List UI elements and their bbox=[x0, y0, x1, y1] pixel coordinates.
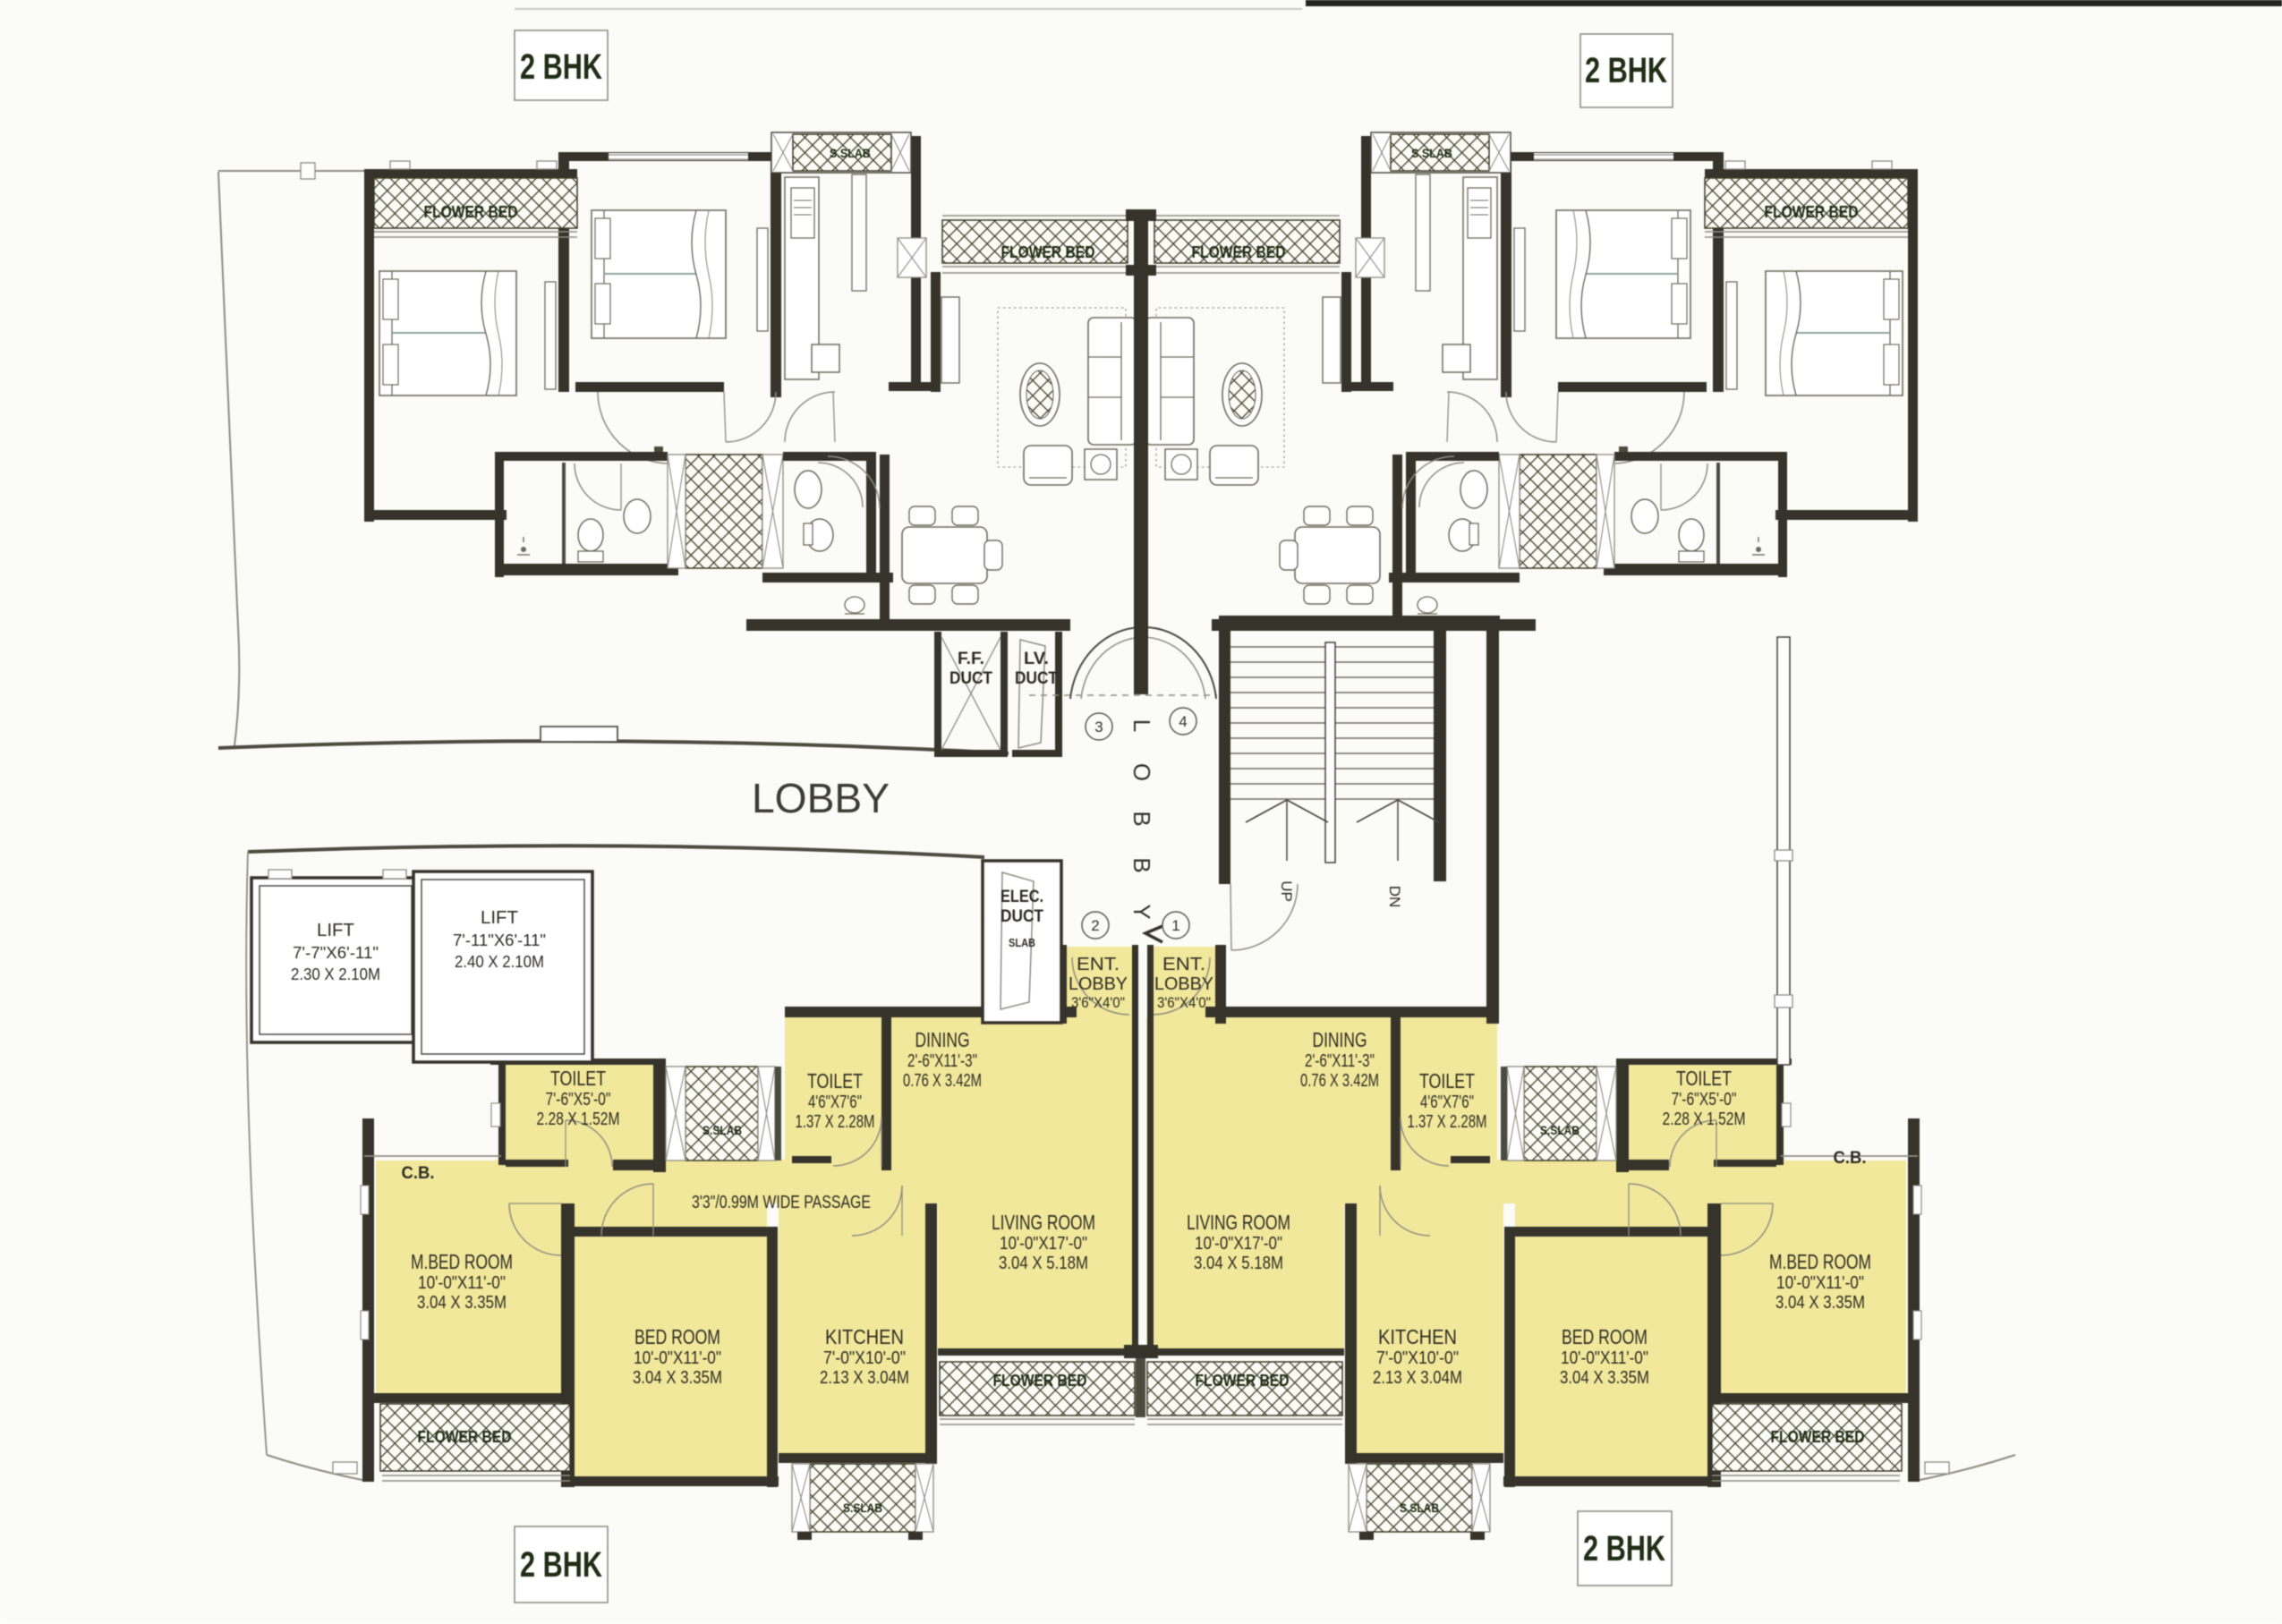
svg-text:3.04 X 3.35M: 3.04 X 3.35M bbox=[1560, 1368, 1649, 1388]
svg-text:S.SLAB: S.SLAB bbox=[1411, 146, 1452, 160]
svg-text:2 BHK: 2 BHK bbox=[520, 47, 602, 87]
svg-text:0.76 X 3.42M: 0.76 X 3.42M bbox=[1300, 1071, 1379, 1091]
svg-text:LOBBY: LOBBY bbox=[752, 775, 890, 821]
svg-text:LIVING ROOM: LIVING ROOM bbox=[1187, 1211, 1290, 1234]
svg-text:DINING: DINING bbox=[1313, 1028, 1367, 1051]
svg-text:TOILET: TOILET bbox=[807, 1069, 863, 1093]
svg-text:2: 2 bbox=[1091, 917, 1099, 934]
svg-text:2.13 X 3.04M: 2.13 X 3.04M bbox=[1373, 1368, 1462, 1388]
svg-text:S.SLAB: S.SLAB bbox=[1540, 1123, 1580, 1137]
svg-text:3: 3 bbox=[1094, 718, 1103, 735]
svg-text:FLOWER BED: FLOWER BED bbox=[1771, 1428, 1865, 1446]
svg-text:3'6"X4'0": 3'6"X4'0" bbox=[1157, 994, 1211, 1011]
svg-text:KITCHEN: KITCHEN bbox=[1378, 1325, 1457, 1348]
svg-text:DINING: DINING bbox=[915, 1028, 970, 1051]
svg-text:TOILET: TOILET bbox=[1419, 1069, 1475, 1093]
svg-text:4'6"X7'6": 4'6"X7'6" bbox=[808, 1093, 862, 1112]
svg-text:ELEC.: ELEC. bbox=[1001, 888, 1043, 906]
svg-text:M.BED ROOM: M.BED ROOM bbox=[1769, 1250, 1871, 1273]
svg-text:10'-0"X11'-0": 10'-0"X11'-0" bbox=[1776, 1273, 1864, 1293]
svg-text:C.B.: C.B. bbox=[402, 1164, 435, 1183]
svg-text:0.76 X 3.42M: 0.76 X 3.42M bbox=[903, 1071, 982, 1091]
svg-text:TOILET: TOILET bbox=[550, 1067, 606, 1090]
svg-text:7'-0"X10'-0": 7'-0"X10'-0" bbox=[1376, 1348, 1459, 1368]
svg-text:2'-6"X11'-3": 2'-6"X11'-3" bbox=[1305, 1051, 1375, 1071]
svg-text:LOBBY: LOBBY bbox=[1069, 974, 1128, 994]
svg-text:7'-6"X5'-0": 7'-6"X5'-0" bbox=[546, 1090, 611, 1110]
svg-text:UP: UP bbox=[1278, 880, 1295, 902]
svg-text:S.SLAB: S.SLAB bbox=[830, 146, 871, 160]
svg-text:LIVING ROOM: LIVING ROOM bbox=[992, 1211, 1095, 1234]
svg-text:L: L bbox=[1128, 719, 1155, 732]
svg-text:FLOWER BED: FLOWER BED bbox=[1196, 1372, 1290, 1390]
svg-text:S.SLAB: S.SLAB bbox=[1400, 1501, 1439, 1515]
svg-text:LIFT: LIFT bbox=[481, 908, 518, 928]
svg-text:DUCT: DUCT bbox=[949, 669, 992, 688]
svg-text:2.40 X 2.10M: 2.40 X 2.10M bbox=[455, 953, 544, 971]
svg-text:2.13 X 3.04M: 2.13 X 3.04M bbox=[820, 1368, 909, 1388]
svg-text:Y: Y bbox=[1128, 904, 1155, 919]
svg-text:B: B bbox=[1128, 857, 1155, 872]
svg-text:FLOWER BED: FLOWER BED bbox=[1765, 203, 1859, 221]
svg-text:2.28 X 1.52M: 2.28 X 1.52M bbox=[1663, 1110, 1746, 1129]
svg-text:FLOWER BED: FLOWER BED bbox=[993, 1372, 1087, 1390]
svg-text:10'-0"X11'-0": 10'-0"X11'-0" bbox=[1561, 1348, 1648, 1368]
svg-text:2 BHK: 2 BHK bbox=[520, 1545, 602, 1585]
svg-text:2 BHK: 2 BHK bbox=[1583, 1529, 1665, 1569]
svg-text:10'-0"X11'-0": 10'-0"X11'-0" bbox=[418, 1273, 506, 1293]
svg-text:ENT.: ENT. bbox=[1077, 955, 1120, 974]
svg-text:DUCT: DUCT bbox=[1015, 669, 1058, 688]
svg-text:7'-0"X10'-0": 7'-0"X10'-0" bbox=[823, 1348, 906, 1368]
svg-text:10'-0"X17'-0": 10'-0"X17'-0" bbox=[1000, 1234, 1087, 1254]
svg-text:FLOWER BED: FLOWER BED bbox=[418, 1428, 512, 1446]
svg-text:LOBBY: LOBBY bbox=[1154, 974, 1213, 994]
svg-text:1: 1 bbox=[1171, 917, 1179, 934]
svg-text:3.04 X 3.35M: 3.04 X 3.35M bbox=[1775, 1293, 1865, 1313]
svg-text:C.B.: C.B. bbox=[1834, 1149, 1867, 1168]
svg-text:M.BED ROOM: M.BED ROOM bbox=[411, 1250, 513, 1273]
svg-text:SLAB: SLAB bbox=[1009, 936, 1035, 949]
svg-text:2'-6"X11'-3": 2'-6"X11'-3" bbox=[907, 1051, 977, 1071]
svg-text:3.04 X 3.35M: 3.04 X 3.35M bbox=[633, 1368, 722, 1388]
svg-text:BED ROOM: BED ROOM bbox=[1562, 1325, 1648, 1348]
svg-text:S.SLAB: S.SLAB bbox=[843, 1501, 882, 1515]
svg-text:2.28 X 1.52M: 2.28 X 1.52M bbox=[537, 1110, 620, 1129]
svg-text:7'-7"X6'-11": 7'-7"X6'-11" bbox=[293, 944, 379, 962]
svg-text:DUCT: DUCT bbox=[1001, 907, 1043, 926]
svg-text:7'-11"X6'-11": 7'-11"X6'-11" bbox=[453, 931, 546, 949]
svg-text:S.SLAB: S.SLAB bbox=[702, 1123, 742, 1137]
svg-text:10'-0"X17'-0": 10'-0"X17'-0" bbox=[1195, 1234, 1282, 1254]
svg-text:FLOWER BED: FLOWER BED bbox=[424, 203, 518, 221]
svg-text:2.30 X 2.10M: 2.30 X 2.10M bbox=[291, 965, 380, 983]
svg-text:KITCHEN: KITCHEN bbox=[825, 1325, 904, 1348]
svg-text:O: O bbox=[1128, 763, 1155, 781]
svg-text:BED ROOM: BED ROOM bbox=[634, 1325, 720, 1348]
svg-text:3'3"/0.99M WIDE PASSAGE: 3'3"/0.99M WIDE PASSAGE bbox=[692, 1193, 871, 1212]
svg-text:LIFT: LIFT bbox=[317, 921, 354, 940]
svg-text:3.04 X 3.35M: 3.04 X 3.35M bbox=[417, 1293, 507, 1313]
svg-text:F.F.: F.F. bbox=[958, 650, 984, 668]
svg-text:B: B bbox=[1128, 811, 1155, 826]
svg-text:ENT.: ENT. bbox=[1162, 955, 1205, 974]
svg-text:3.04 X 5.18M: 3.04 X 5.18M bbox=[1194, 1254, 1283, 1273]
svg-text:4: 4 bbox=[1179, 713, 1187, 730]
svg-text:10'-0"X11'-0": 10'-0"X11'-0" bbox=[634, 1348, 721, 1368]
svg-text:4'6"X7'6": 4'6"X7'6" bbox=[1420, 1093, 1474, 1112]
svg-text:3.04 X 5.18M: 3.04 X 5.18M bbox=[999, 1254, 1088, 1273]
svg-text:FLOWER BED: FLOWER BED bbox=[1192, 243, 1286, 261]
svg-text:3'6"X4'0": 3'6"X4'0" bbox=[1071, 994, 1125, 1011]
svg-text:DN: DN bbox=[1386, 886, 1403, 908]
svg-text:1.37 X 2.28M: 1.37 X 2.28M bbox=[1408, 1112, 1487, 1132]
svg-text:7'-6"X5'-0": 7'-6"X5'-0" bbox=[1672, 1090, 1737, 1110]
svg-text:LV.: LV. bbox=[1024, 650, 1049, 668]
svg-text:1.37 X 2.28M: 1.37 X 2.28M bbox=[796, 1112, 875, 1132]
svg-text:TOILET: TOILET bbox=[1676, 1067, 1732, 1090]
svg-text:2 BHK: 2 BHK bbox=[1585, 51, 1667, 90]
svg-text:FLOWER BED: FLOWER BED bbox=[1001, 243, 1095, 261]
